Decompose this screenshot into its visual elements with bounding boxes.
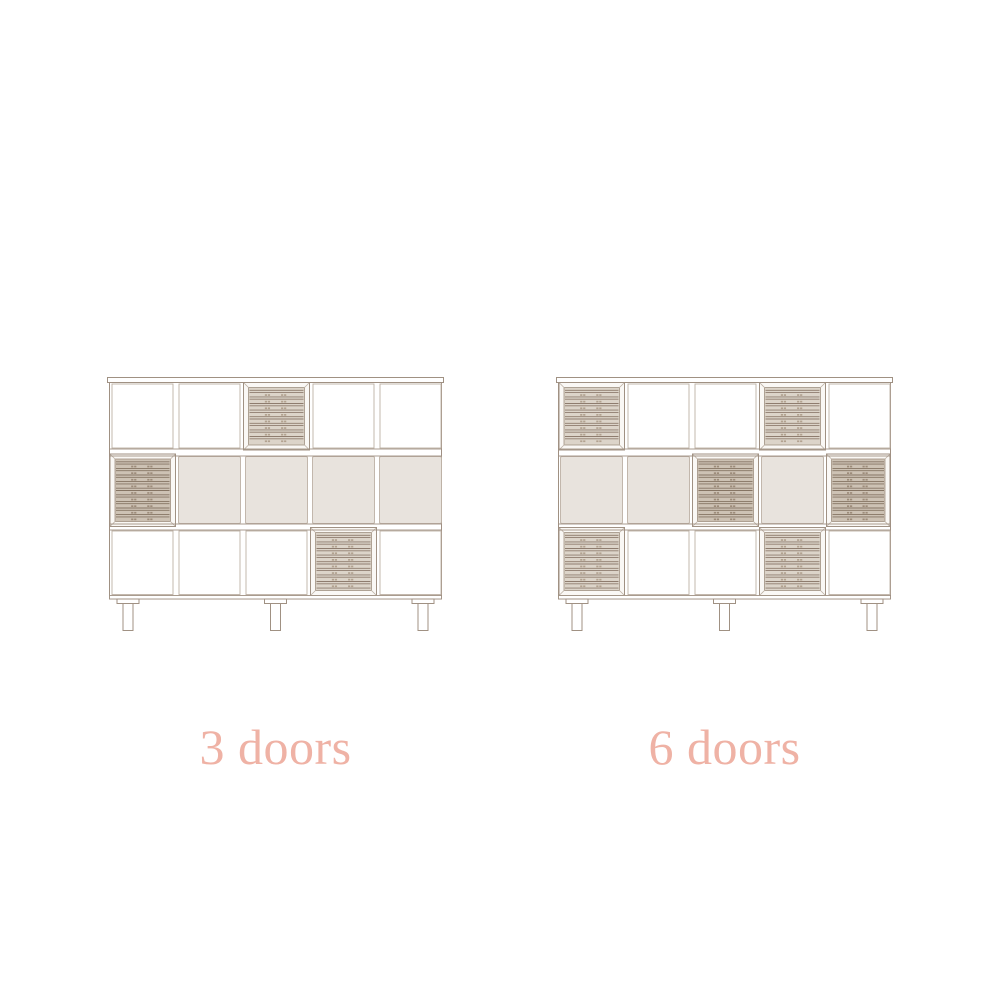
flat-panel: [380, 457, 442, 524]
open-compartment: [380, 531, 441, 595]
cabinet-leg: [714, 599, 736, 631]
leg-plate: [714, 599, 736, 604]
open-compartment: [628, 531, 689, 595]
open-compartment: [695, 531, 756, 595]
leg-post: [418, 604, 428, 631]
cabinet-cell-open: [313, 384, 374, 448]
flat-panel: [179, 457, 241, 524]
open-compartment: [829, 384, 890, 448]
cabinet-label-3-doors: 3 doors: [107, 720, 444, 774]
leg-post: [720, 604, 730, 631]
cabinet-cell-open: [695, 384, 756, 448]
cabinet-cell-open: [628, 384, 689, 448]
open-compartment: [112, 531, 173, 595]
leg-post: [271, 604, 281, 631]
cabinet-cell-door: [559, 383, 625, 451]
cabinet-illustration-3-doors: [107, 377, 444, 632]
cabinet-cell-door: [110, 454, 176, 527]
cabinet-cell-door: [760, 528, 826, 596]
leg-plate: [265, 599, 287, 604]
cabinet-cell-door: [244, 383, 310, 451]
leg-plate: [117, 599, 139, 604]
cabinet-leg: [861, 599, 883, 631]
bottom-board: [559, 596, 891, 600]
flat-panel: [762, 457, 824, 524]
leg-post: [867, 604, 877, 631]
cabinet-cell-panel: [561, 457, 623, 524]
cabinet-cell-panel: [762, 457, 824, 524]
cabinet-cell-panel: [628, 457, 690, 524]
cabinet-cell-open: [246, 531, 307, 595]
cabinet-cell-open: [112, 384, 173, 448]
top-board: [108, 378, 444, 383]
top-board: [557, 378, 893, 383]
open-compartment: [313, 384, 374, 448]
open-compartment: [695, 384, 756, 448]
cabinet-cell-door: [827, 454, 891, 527]
cabinet-label-6-doors: 6 doors: [556, 720, 893, 774]
open-compartment: [829, 531, 890, 595]
bottom-board: [110, 596, 442, 600]
cabinet-3-doors: 3 doors: [107, 377, 444, 632]
cabinet-cell-open: [628, 531, 689, 595]
cabinet-cell-panel: [246, 457, 308, 524]
open-compartment: [380, 384, 441, 448]
cabinet-leg: [265, 599, 287, 631]
cabinet-cell-door: [559, 528, 625, 596]
cabinet-cell-open: [112, 531, 173, 595]
open-compartment: [628, 384, 689, 448]
cabinet-cell-door: [311, 528, 377, 596]
cabinet-cell-open: [179, 531, 240, 595]
flat-panel: [246, 457, 308, 524]
cabinet-cell-open: [829, 384, 890, 448]
leg-post: [572, 604, 582, 631]
cabinet-leg: [412, 599, 434, 631]
flat-panel: [313, 457, 375, 524]
cabinet-leg: [117, 599, 139, 631]
cabinet-cell-open: [380, 384, 441, 448]
cabinet-cell-door: [693, 454, 759, 527]
open-compartment: [179, 384, 240, 448]
cabinet-cell-open: [179, 384, 240, 448]
cabinet-6-doors: 6 doors: [556, 377, 893, 632]
open-compartment: [112, 384, 173, 448]
cabinet-cell-panel: [313, 457, 375, 524]
cabinet-cell-panel: [380, 457, 442, 524]
cabinet-illustration-6-doors: [556, 377, 893, 632]
leg-plate: [412, 599, 434, 604]
cabinet-cell-open: [695, 531, 756, 595]
leg-post: [123, 604, 133, 631]
flat-panel: [628, 457, 690, 524]
cabinet-cell-open: [380, 531, 441, 595]
flat-panel: [561, 457, 623, 524]
cabinet-leg: [566, 599, 588, 631]
cabinet-cell-panel: [179, 457, 241, 524]
leg-plate: [861, 599, 883, 604]
page-canvas: 3 doors 6 doors: [0, 0, 1000, 1000]
cabinet-cell-open: [829, 531, 890, 595]
cabinet-cell-door: [760, 383, 826, 451]
leg-plate: [566, 599, 588, 604]
open-compartment: [179, 531, 240, 595]
open-compartment: [246, 531, 307, 595]
